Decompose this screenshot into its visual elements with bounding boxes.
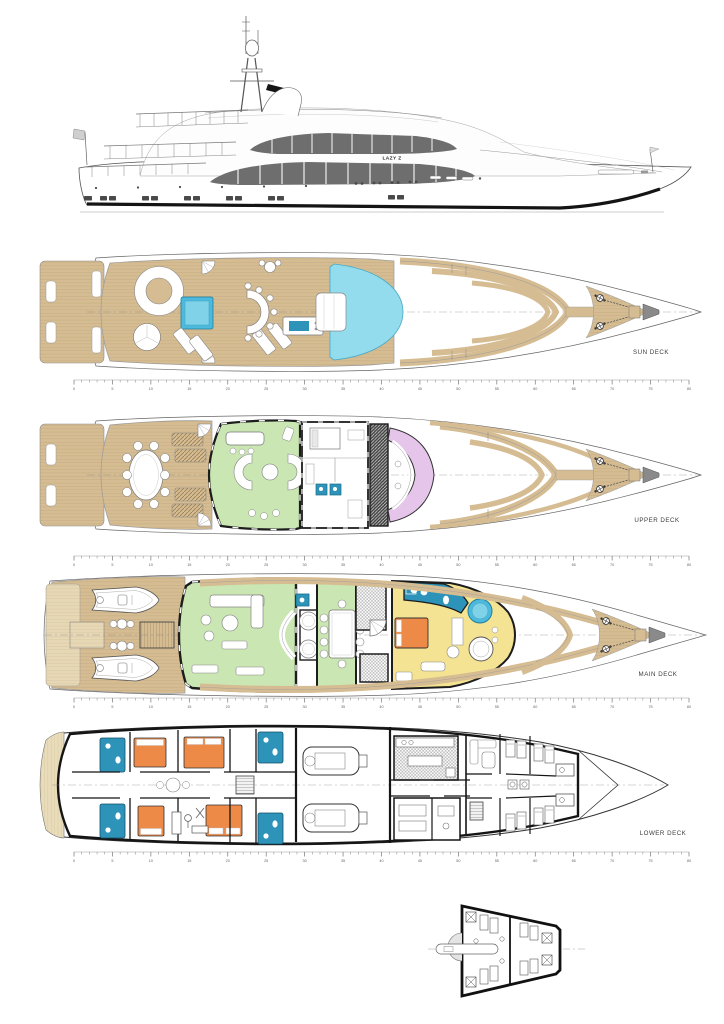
svg-text:15: 15 (187, 387, 191, 391)
svg-text:25: 25 (264, 705, 268, 709)
svg-text:50: 50 (456, 859, 460, 863)
upper-deck-label: UPPER DECK (634, 517, 680, 524)
svg-text:45: 45 (418, 563, 422, 567)
svg-text:10: 10 (149, 387, 153, 391)
svg-text:70: 70 (610, 705, 614, 709)
round-shower (469, 637, 493, 661)
svg-text:35: 35 (341, 563, 345, 567)
ga-drawing: LAZY Z (0, 0, 724, 1024)
svg-text:5: 5 (111, 705, 113, 709)
svg-text:55: 55 (495, 705, 499, 709)
svg-text:65: 65 (572, 387, 576, 391)
lower-deck-label: LOWER DECK (640, 830, 687, 837)
funnel-arch (262, 88, 302, 116)
main-deck-plan (44, 574, 706, 697)
svg-text:60: 60 (533, 563, 537, 567)
lounge-table (262, 464, 278, 480)
svg-text:50: 50 (456, 387, 460, 391)
scale-ruler-main: 05101520253035404550556065707580 (73, 698, 691, 709)
svg-text:40: 40 (379, 705, 383, 709)
salon-sofa (251, 595, 263, 628)
sun-deck-plan (40, 253, 701, 372)
yacht-ga-sheet: LAZY Z (0, 0, 724, 1024)
svg-text:35: 35 (341, 705, 345, 709)
svg-text:50: 50 (456, 705, 460, 709)
svg-text:60: 60 (533, 859, 537, 863)
svg-text:35: 35 (341, 859, 345, 863)
lower-stairs (236, 776, 254, 794)
stair-trunk (370, 424, 388, 526)
svg-text:40: 40 (379, 387, 383, 391)
svg-text:45: 45 (418, 859, 422, 863)
svg-text:40: 40 (379, 563, 383, 567)
svg-text:70: 70 (610, 387, 614, 391)
upper-deck-plan (40, 416, 701, 535)
svg-text:60: 60 (533, 705, 537, 709)
svg-text:25: 25 (264, 387, 268, 391)
svg-text:0: 0 (73, 859, 75, 863)
scale-ruler-sun: 05101520253035404550556065707580 (73, 380, 691, 391)
svg-text:80: 80 (687, 705, 691, 709)
svg-text:10: 10 (149, 563, 153, 567)
svg-text:45: 45 (418, 705, 422, 709)
svg-text:5: 5 (111, 859, 113, 863)
svg-text:45: 45 (418, 387, 422, 391)
svg-text:0: 0 (73, 705, 75, 709)
svg-text:20: 20 (226, 563, 230, 567)
pool-sunpad (316, 293, 346, 331)
svg-text:15: 15 (187, 705, 191, 709)
svg-text:50: 50 (456, 563, 460, 567)
svg-text:5: 5 (111, 563, 113, 567)
svg-text:55: 55 (495, 387, 499, 391)
svg-text:70: 70 (610, 859, 614, 863)
svg-text:15: 15 (187, 859, 191, 863)
svg-text:55: 55 (495, 563, 499, 567)
svg-text:75: 75 (648, 563, 652, 567)
alfresco-dining-table (129, 450, 163, 500)
foyer-checker (360, 654, 388, 682)
svg-text:20: 20 (226, 387, 230, 391)
svg-text:60: 60 (533, 387, 537, 391)
stern-flag (73, 129, 87, 165)
svg-text:80: 80 (687, 387, 691, 391)
svg-text:25: 25 (264, 859, 268, 863)
svg-text:30: 30 (303, 387, 307, 391)
main-deck-label: MAIN DECK (639, 671, 678, 678)
svg-text:25: 25 (264, 563, 268, 567)
svg-text:30: 30 (303, 705, 307, 709)
svg-text:0: 0 (73, 387, 75, 391)
svg-text:55: 55 (495, 859, 499, 863)
store-rooms (394, 798, 460, 840)
svg-text:10: 10 (149, 705, 153, 709)
svg-text:30: 30 (303, 563, 307, 567)
profile-view: LAZY Z (73, 16, 691, 212)
svg-text:80: 80 (687, 859, 691, 863)
svg-text:65: 65 (572, 563, 576, 567)
svg-text:35: 35 (341, 387, 345, 391)
svg-text:10: 10 (149, 859, 153, 863)
svg-text:5: 5 (111, 387, 113, 391)
svg-text:40: 40 (379, 859, 383, 863)
lounge-bar (226, 432, 264, 445)
svg-text:70: 70 (610, 563, 614, 567)
twin-circle-unit (300, 610, 318, 660)
svg-text:30: 30 (303, 859, 307, 863)
svg-text:65: 65 (572, 859, 576, 863)
scale-ruler-lower: 05101520253035404550556065707580 (73, 852, 691, 863)
svg-text:75: 75 (648, 859, 652, 863)
radar-dome-icon (246, 40, 259, 56)
salon-table (222, 615, 238, 631)
svg-text:80: 80 (687, 563, 691, 567)
lobby-table (166, 778, 180, 792)
svg-text:65: 65 (572, 705, 576, 709)
svg-text:75: 75 (648, 387, 652, 391)
dining-table (329, 610, 355, 658)
scale-ruler-upper: 05101520253035404550556065707580 (73, 556, 691, 567)
sun-deck-label: SUN DECK (633, 349, 669, 356)
captain-cabin-block (302, 422, 368, 528)
lower-deck-plan (40, 725, 668, 844)
svg-text:75: 75 (648, 705, 652, 709)
svg-text:20: 20 (226, 859, 230, 863)
yacht-name: LAZY Z (382, 156, 401, 162)
cocktail-table (265, 262, 276, 273)
svg-text:15: 15 (187, 563, 191, 567)
tank-deck-plan (428, 906, 586, 996)
svg-text:20: 20 (226, 705, 230, 709)
svg-text:0: 0 (73, 563, 75, 567)
